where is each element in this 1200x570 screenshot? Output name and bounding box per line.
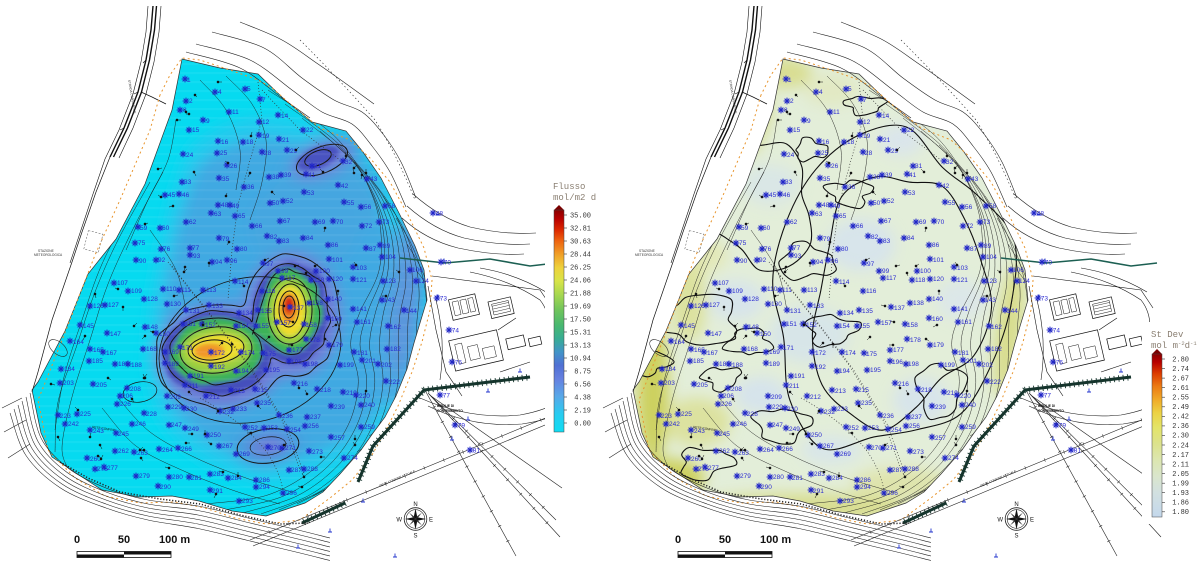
svg-text:8.75: 8.75: [574, 368, 591, 376]
svg-text:2.36: 2.36: [1172, 423, 1189, 431]
svg-text:2.24: 2.24: [1172, 442, 1189, 450]
svg-text:0.00: 0.00: [574, 420, 591, 428]
svg-text:19.69: 19.69: [570, 303, 591, 311]
svg-text:28.44: 28.44: [570, 251, 591, 259]
svg-text:1.86: 1.86: [1172, 500, 1189, 508]
svg-text:2.49: 2.49: [1172, 404, 1189, 412]
svg-text:1.80: 1.80: [1172, 509, 1189, 517]
svg-text:21.88: 21.88: [570, 290, 591, 298]
svg-text:St Dev: St Dev: [1151, 330, 1184, 340]
svg-text:35.00: 35.00: [570, 212, 591, 220]
svg-text:1.93: 1.93: [1172, 490, 1189, 498]
svg-text:17.50: 17.50: [570, 316, 591, 324]
svg-text:2.17: 2.17: [1172, 452, 1189, 460]
svg-text:2.19: 2.19: [574, 407, 591, 415]
svg-text:13.13: 13.13: [570, 342, 591, 350]
svg-text:2.42: 2.42: [1172, 414, 1189, 422]
svg-text:4.38: 4.38: [574, 394, 591, 402]
svg-text:mol/m2 d: mol/m2 d: [553, 193, 596, 203]
svg-text:32.81: 32.81: [570, 225, 591, 233]
svg-text:1.99: 1.99: [1172, 481, 1189, 489]
svg-text:2.05: 2.05: [1172, 471, 1189, 479]
svg-text:10.94: 10.94: [570, 355, 591, 363]
svg-text:24.06: 24.06: [570, 277, 591, 285]
svg-text:2.30: 2.30: [1172, 433, 1189, 441]
svg-text:15.31: 15.31: [570, 329, 591, 337]
svg-text:26.25: 26.25: [570, 264, 591, 272]
svg-text:2.67: 2.67: [1172, 375, 1189, 383]
svg-text:2.80: 2.80: [1172, 356, 1189, 364]
svg-text:30.63: 30.63: [570, 238, 591, 246]
svg-text:2.61: 2.61: [1172, 385, 1189, 393]
svg-text:2.74: 2.74: [1172, 366, 1189, 374]
svg-text:2.55: 2.55: [1172, 395, 1189, 403]
svg-text:6.56: 6.56: [574, 381, 591, 389]
svg-text:2.11: 2.11: [1172, 461, 1189, 469]
svg-text:Flusso: Flusso: [553, 182, 585, 192]
